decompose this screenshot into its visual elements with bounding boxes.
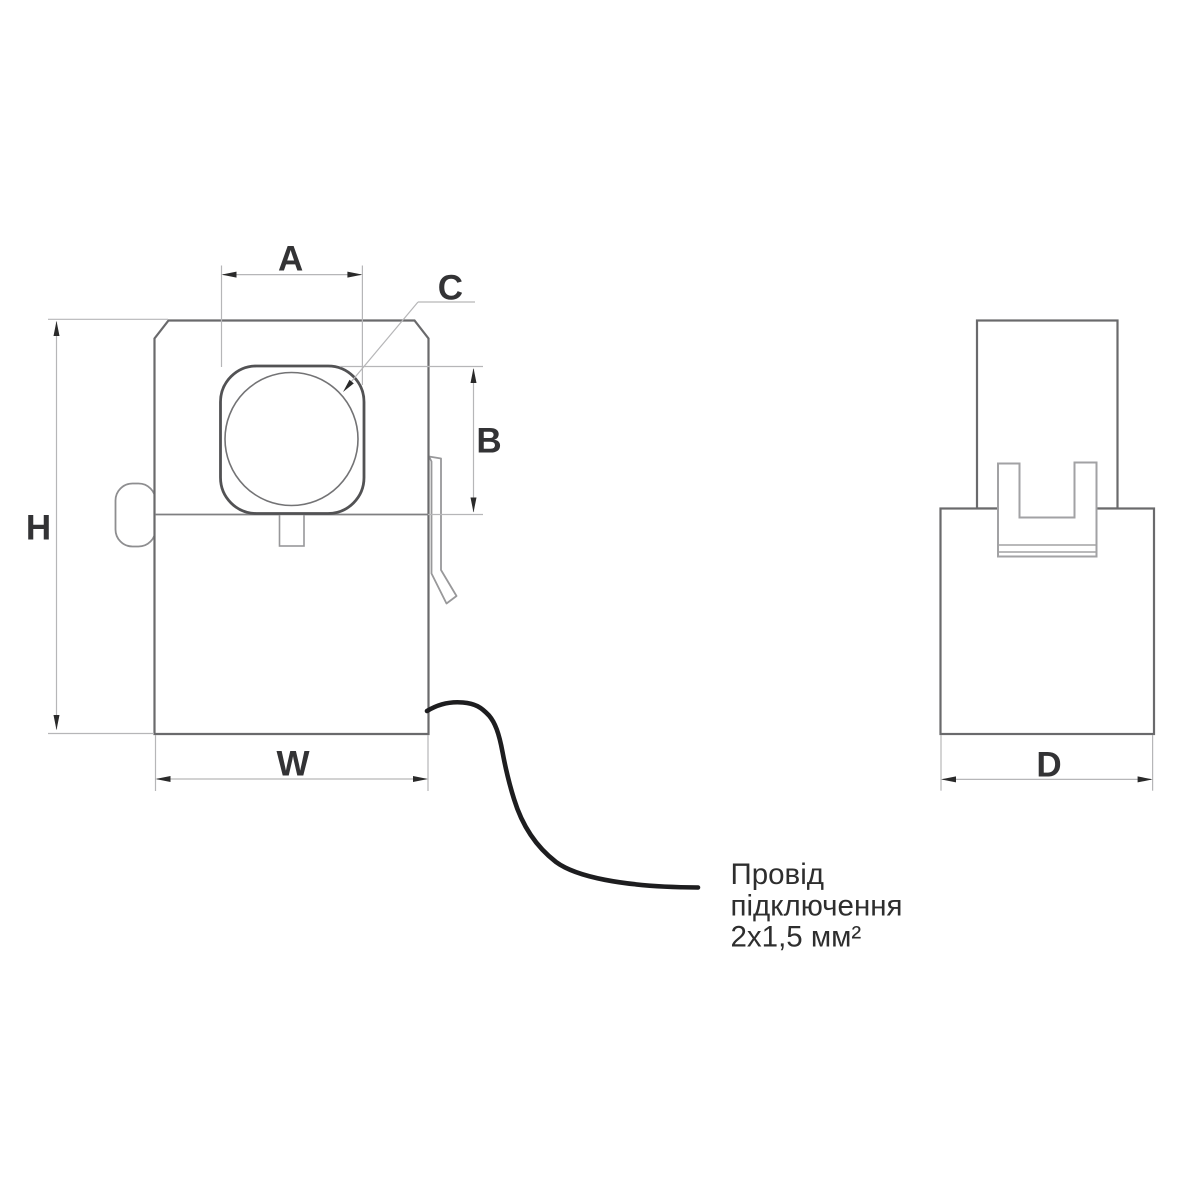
svg-text:H: H (26, 509, 51, 548)
svg-text:D: D (1036, 746, 1061, 785)
svg-text:C: C (438, 268, 463, 307)
svg-text:Провід: Провід (731, 858, 824, 891)
svg-text:B: B (476, 422, 501, 461)
svg-text:підключення: підключення (731, 890, 903, 923)
svg-text:W: W (276, 745, 309, 784)
svg-text:A: A (278, 239, 303, 278)
svg-text:2х1,5 мм²: 2х1,5 мм² (731, 921, 862, 954)
